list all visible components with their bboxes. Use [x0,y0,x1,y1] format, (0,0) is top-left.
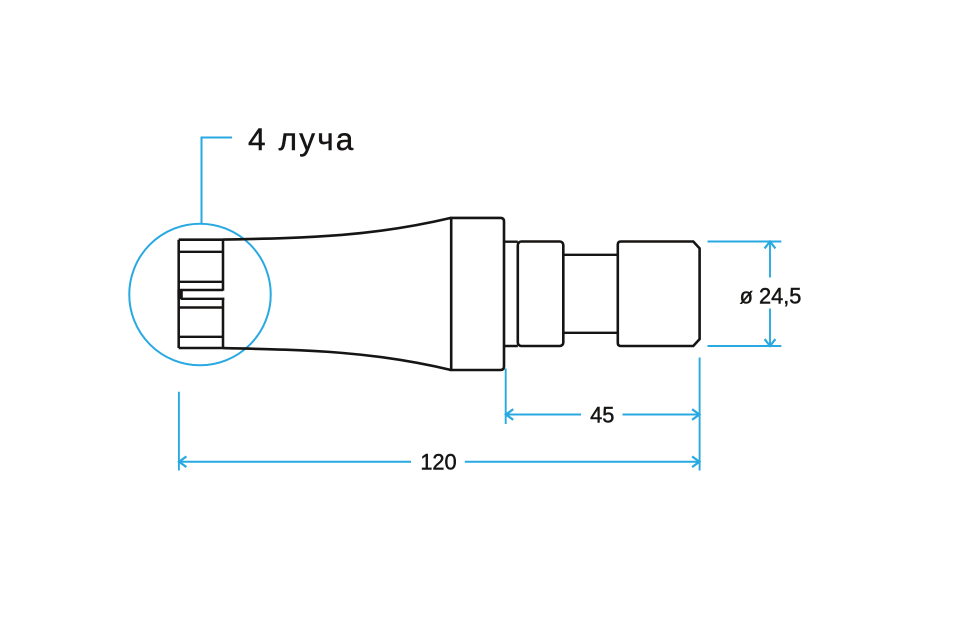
svg-text:4 луча: 4 луча [248,121,356,157]
svg-text:ø 24,5: ø 24,5 [740,284,802,309]
svg-text:120: 120 [420,450,456,475]
svg-text:45: 45 [590,402,614,427]
